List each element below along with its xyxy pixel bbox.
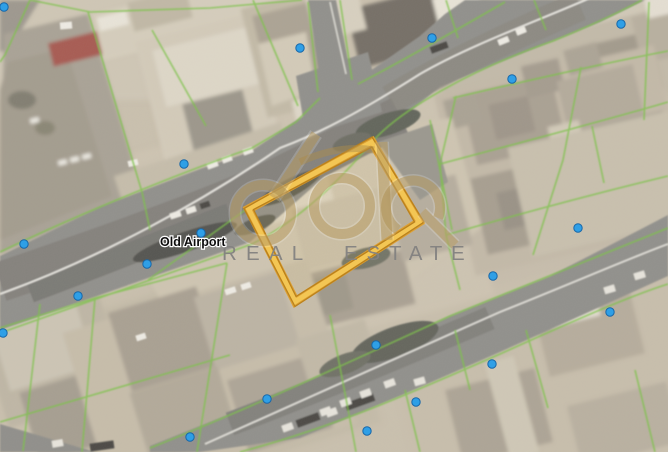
svg-text:ESTATE: ESTATE [344,242,474,265]
svg-text:Old Airport: Old Airport [160,235,226,249]
svg-text:REAL: REAL [222,242,312,265]
